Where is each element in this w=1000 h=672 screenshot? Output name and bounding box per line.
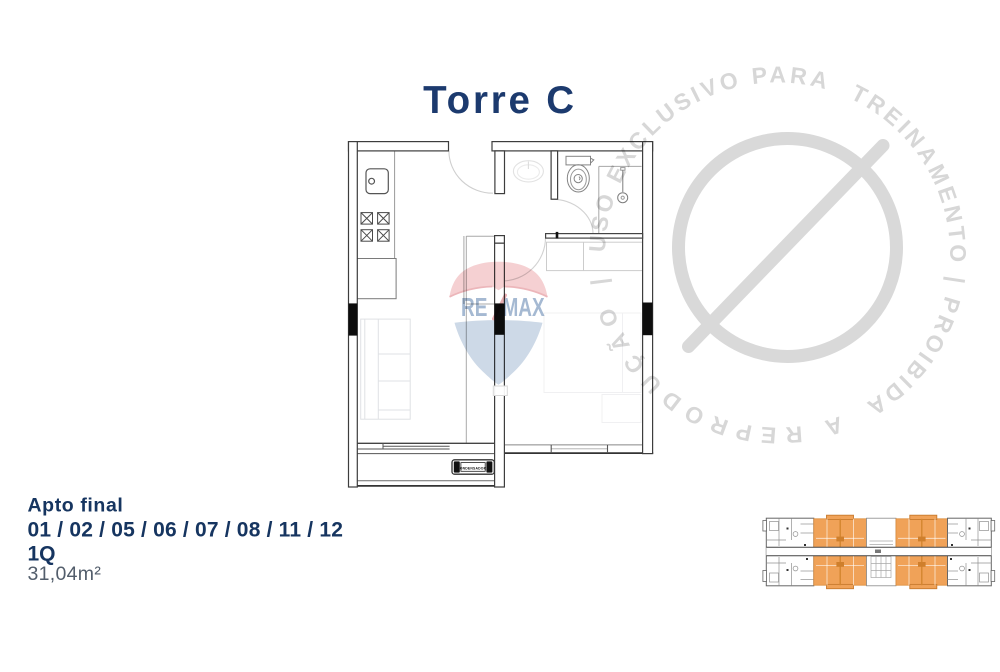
svg-text:Apto final: Apto final bbox=[28, 495, 124, 517]
svg-text:Torre C: Torre C bbox=[423, 79, 577, 122]
svg-text:01 / 02 / 05 / 06 / 07 / 08 /: 01 / 02 / 05 / 06 / 07 / 08 / 11 / 12 bbox=[28, 519, 344, 542]
svg-text:CONDENSADORA: CONDENSADORA bbox=[457, 466, 489, 470]
svg-text:RE: RE bbox=[461, 292, 487, 322]
svg-text:31,04m²: 31,04m² bbox=[28, 563, 102, 585]
svg-text:MAX: MAX bbox=[503, 292, 545, 322]
